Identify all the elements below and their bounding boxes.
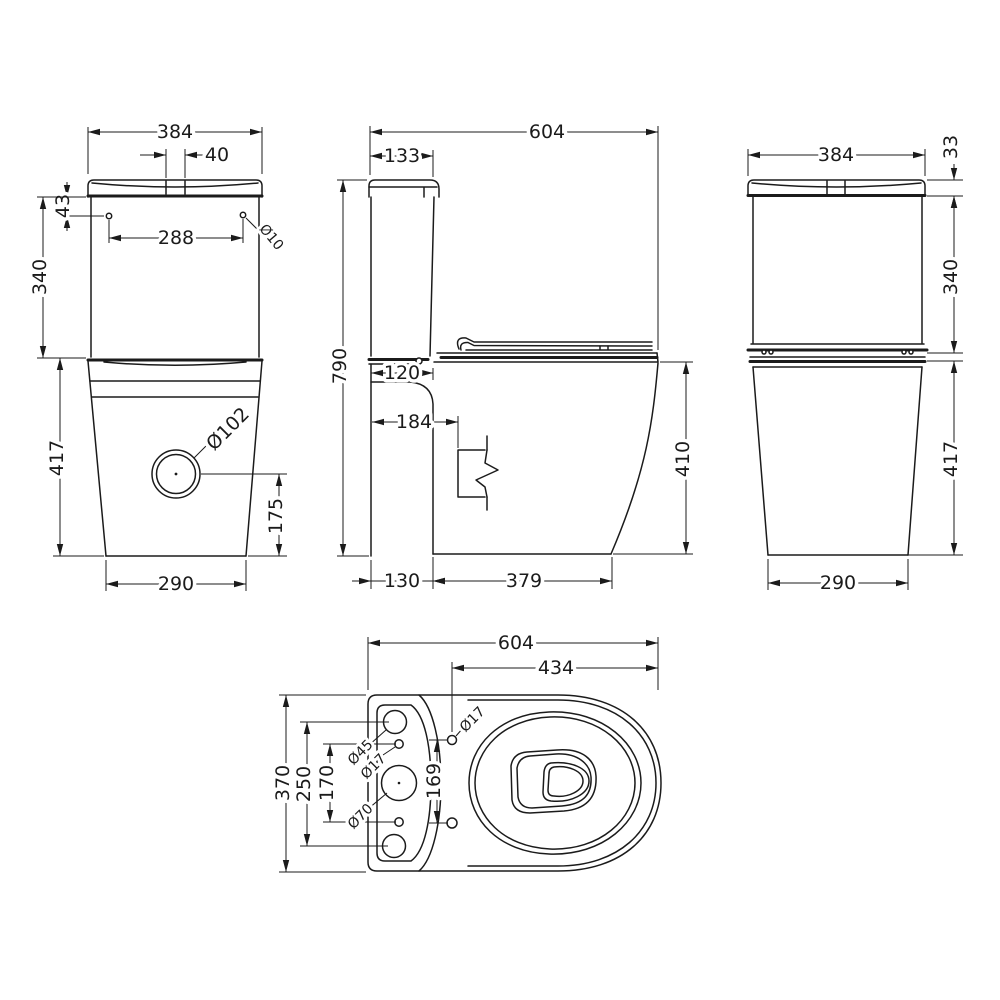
back-hinge-screw — [762, 350, 766, 354]
dim-front-cistern-height: 340 — [29, 259, 51, 295]
back-pedestal-sides — [753, 367, 922, 555]
front-outlet-center — [175, 473, 178, 476]
toilet-dimension-drawing: 384 40 43 288 Ø10 340 417 Ø102 175 290 — [0, 0, 1000, 1000]
dim-front-hole-diameter: Ø10 — [256, 221, 287, 253]
back-hinge-screw — [769, 350, 773, 354]
front-hole-left — [106, 213, 111, 218]
dim-side-back-offset: 130 — [384, 570, 420, 592]
back-cistern-lid — [748, 180, 925, 196]
dim-side-foot-depth: 379 — [506, 570, 542, 592]
side-pan-back — [371, 382, 433, 554]
dim-side-rim-height: 410 — [672, 441, 694, 477]
dim-top-overall-depth: 604 — [498, 632, 534, 654]
dim-top-seat-hole-spacing: 169 — [423, 763, 445, 799]
dim-back-lid-height: 33 — [940, 135, 962, 159]
dim-front-pan-height: 417 — [46, 440, 68, 476]
dim-side-ledge-depth: 120 — [384, 362, 420, 384]
front-lid-curve — [92, 183, 258, 187]
back-view: 384 33 340 417 290 — [748, 135, 963, 594]
front-view: 384 40 43 288 Ø10 340 417 Ø102 175 290 — [29, 121, 287, 595]
top-seat-hole-bottom — [447, 818, 457, 828]
dim-top-seat-hole-diameter: Ø17 — [457, 704, 489, 736]
front-hole-right — [240, 212, 245, 217]
top-fixing-hole-bottom — [395, 818, 403, 826]
dim-top-inner-hole-spacing: 170 — [316, 765, 338, 801]
dim-top-seat-hole-to-front: 434 — [538, 657, 574, 679]
side-soil-pipe — [458, 436, 487, 510]
side-lid-detail — [369, 187, 437, 197]
top-view: 604 434 370 250 170 169 Ø45 Ø17 Ø70 Ø17 — [272, 632, 661, 872]
dim-side-outlet-offset: 184 — [396, 411, 432, 433]
side-seat-lid-top — [458, 338, 652, 349]
dim-back-pan-height: 417 — [940, 441, 962, 477]
top-inner-outline — [468, 700, 656, 866]
top-seat-hole-top — [448, 736, 457, 745]
top-flush-pipe-center — [398, 782, 401, 785]
top-fixing-hole-top — [395, 740, 403, 748]
dim-front-button-width: 40 — [205, 144, 229, 166]
side-soil-pipe-break — [476, 450, 498, 497]
back-lid-curve — [752, 183, 921, 187]
dim-front-hole-spacing: 288 — [158, 227, 194, 249]
dim-front-hole-offset: 43 — [52, 194, 74, 218]
back-hinge-screw — [909, 350, 913, 354]
front-pedestal-lines — [90, 381, 260, 397]
side-cistern-body — [371, 197, 434, 356]
dim-side-overall-height: 790 — [329, 348, 351, 384]
side-cistern-lid — [369, 180, 439, 197]
front-cistern-lid — [88, 180, 262, 197]
dim-back-cistern-height: 340 — [940, 259, 962, 295]
technical-drawing-page: 384 40 43 288 Ø10 340 417 Ø102 175 290 — [0, 0, 1000, 1000]
dim-side-overall-depth: 604 — [529, 121, 565, 143]
dim-top-overall-width: 370 — [272, 765, 294, 801]
dim-front-base-width: 290 — [158, 573, 194, 595]
dim-front-outlet-diameter: Ø102 — [202, 403, 254, 455]
front-cistern-body — [91, 197, 259, 357]
front-rim-curve — [104, 362, 246, 365]
dim-side-lid-depth: 133 — [384, 145, 420, 167]
top-seat-ring-outer — [469, 712, 641, 854]
dim-front-overall-width: 384 — [157, 121, 193, 143]
side-view: 604 133 790 120 184 410 130 379 — [329, 121, 694, 592]
back-hinge-screw — [902, 350, 906, 354]
dim-back-overall-width: 384 — [818, 144, 854, 166]
side-seat-lid-inner — [461, 342, 652, 350]
dim-back-base-width: 290 — [820, 572, 856, 594]
dim-top-outer-hole-spacing: 250 — [293, 766, 315, 802]
dim-front-outlet-height: 175 — [265, 498, 287, 534]
back-cistern-body — [753, 196, 922, 343]
side-pan-front-curve — [611, 363, 658, 554]
top-seat-ring-inner — [475, 717, 635, 849]
top-water-spot-inner — [548, 767, 583, 797]
